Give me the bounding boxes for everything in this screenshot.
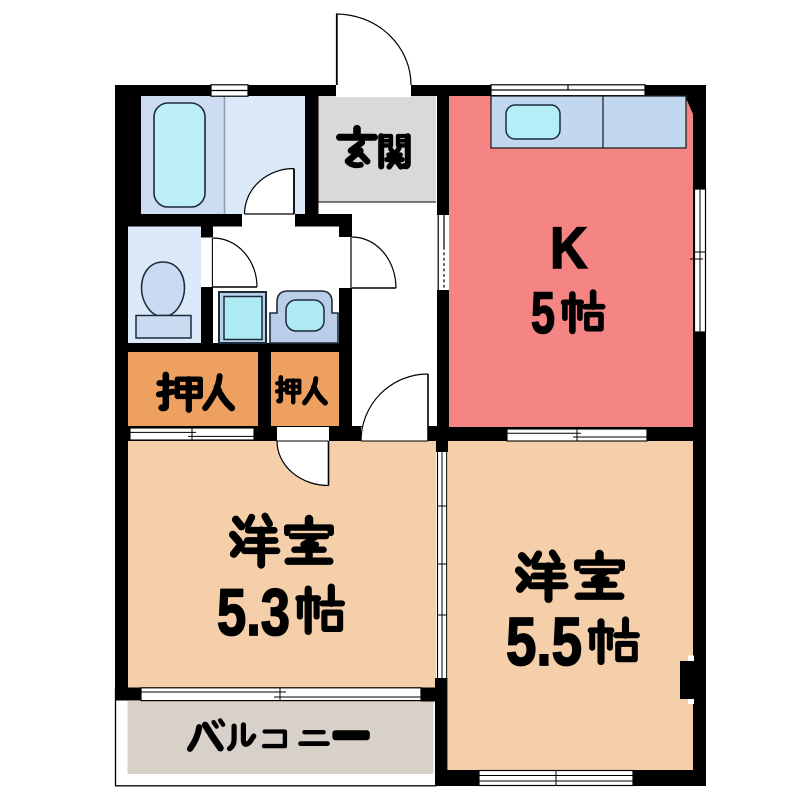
svg-text:5.5: 5.5 xyxy=(506,604,582,680)
svg-text:5: 5 xyxy=(531,281,555,346)
svg-text:K: K xyxy=(550,216,588,281)
svg-text:5.3: 5.3 xyxy=(217,575,290,649)
